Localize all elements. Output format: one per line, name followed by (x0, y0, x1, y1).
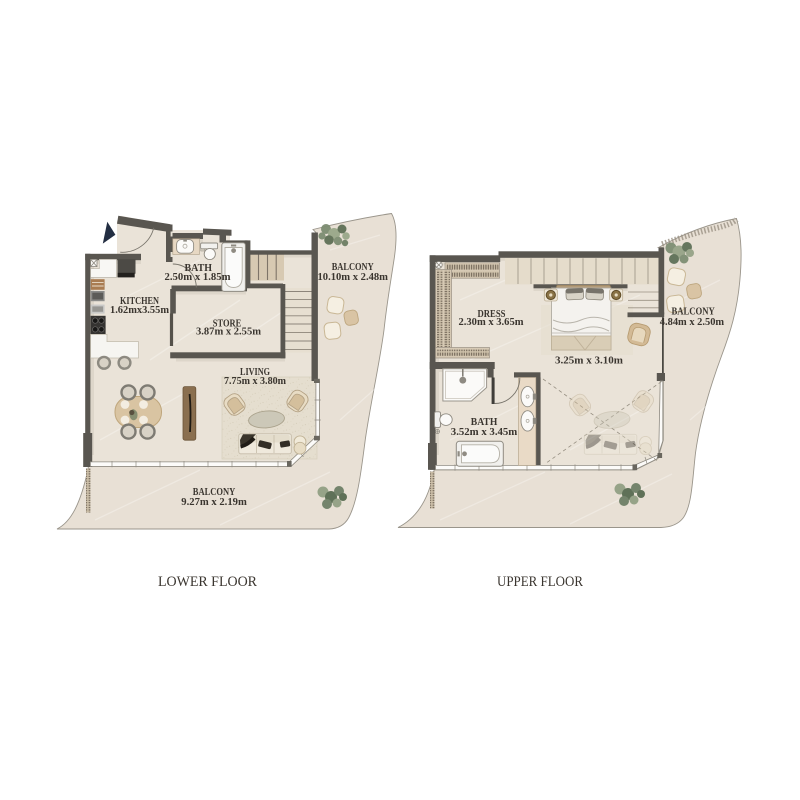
svg-text:UPPER FLOOR: UPPER FLOOR (497, 574, 583, 590)
svg-text:3.52m x 3.45m: 3.52m x 3.45m (451, 426, 518, 438)
svg-text:4.84m x 2.50m: 4.84m x 2.50m (660, 316, 724, 328)
svg-text:1.62mx3.55m: 1.62mx3.55m (110, 304, 169, 316)
svg-text:3.87m x 2.55m: 3.87m x 2.55m (196, 325, 261, 337)
svg-text:2.30m x 3.65m: 2.30m x 3.65m (459, 316, 524, 328)
svg-text:LOWER FLOOR: LOWER FLOOR (158, 574, 257, 590)
svg-text:10.10m x 2.48m: 10.10m x 2.48m (318, 271, 389, 283)
svg-text:3.25m x 3.10m: 3.25m x 3.10m (555, 355, 623, 367)
svg-text:2.50m x 1.85m: 2.50m x 1.85m (165, 271, 231, 283)
svg-text:9.27m x 2.19m: 9.27m x 2.19m (181, 496, 247, 508)
svg-text:7.75m x 3.80m: 7.75m x 3.80m (224, 375, 286, 387)
